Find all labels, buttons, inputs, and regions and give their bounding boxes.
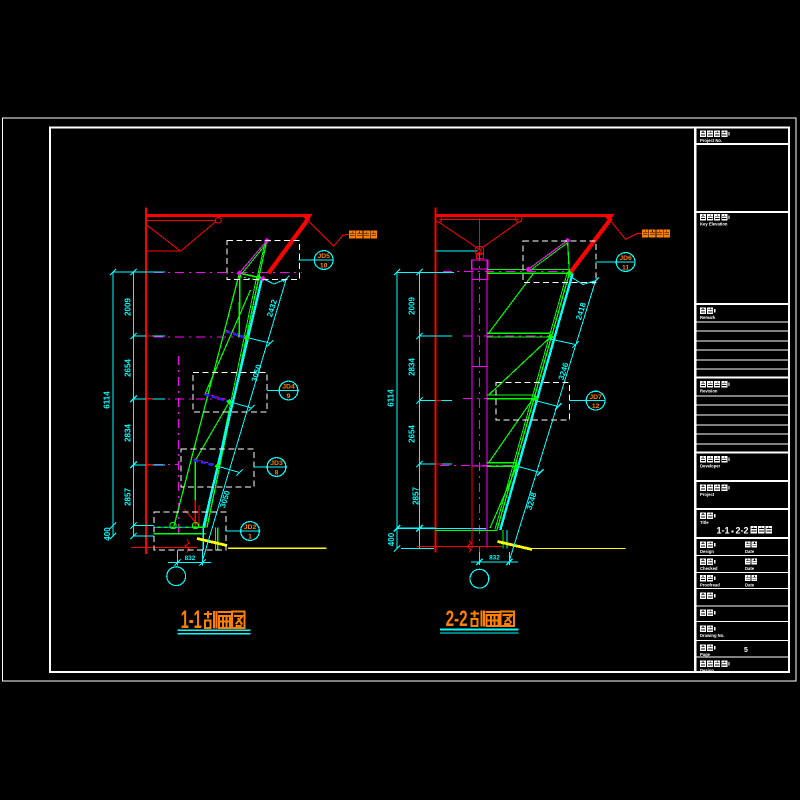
svg-text:JD6: JD6 bbox=[619, 255, 632, 262]
svg-text:6114: 6114 bbox=[103, 391, 112, 409]
svg-text:1: 1 bbox=[248, 533, 252, 540]
svg-text:400: 400 bbox=[103, 527, 112, 541]
svg-text:2009: 2009 bbox=[124, 298, 133, 316]
svg-text:8: 8 bbox=[275, 469, 279, 476]
svg-text:Design: Design bbox=[700, 668, 714, 673]
svg-text:Revision: Revision bbox=[700, 389, 718, 394]
svg-text:JD2: JD2 bbox=[244, 524, 257, 531]
svg-text:832: 832 bbox=[489, 555, 500, 562]
svg-text:Drawing No.: Drawing No. bbox=[700, 633, 724, 638]
svg-text:Developer: Developer bbox=[700, 464, 721, 469]
svg-text:2009: 2009 bbox=[408, 297, 417, 315]
svg-text:JD3: JD3 bbox=[270, 460, 283, 467]
svg-text:9: 9 bbox=[287, 393, 291, 400]
svg-text:Date: Date bbox=[745, 583, 755, 588]
svg-text:12: 12 bbox=[592, 403, 600, 410]
svg-text:2834: 2834 bbox=[408, 358, 417, 376]
svg-text:Remark: Remark bbox=[700, 315, 716, 320]
svg-text:832: 832 bbox=[185, 555, 196, 562]
svg-text:Page: Page bbox=[700, 652, 711, 657]
svg-text:2-2: 2-2 bbox=[446, 606, 468, 631]
svg-text:JD7: JD7 bbox=[589, 394, 602, 401]
svg-text:2654: 2654 bbox=[124, 359, 133, 377]
svg-text:Key Elevation: Key Elevation bbox=[700, 222, 728, 227]
svg-text:Project No.: Project No. bbox=[700, 138, 722, 143]
svg-text:5: 5 bbox=[744, 647, 748, 654]
svg-text:JD5: JD5 bbox=[317, 253, 330, 260]
svg-text:2654: 2654 bbox=[408, 425, 417, 443]
svg-text:Date: Date bbox=[745, 566, 755, 571]
svg-text:1-1: 1-1 bbox=[717, 526, 730, 536]
svg-text:Design: Design bbox=[700, 549, 714, 554]
svg-text:6114: 6114 bbox=[387, 389, 396, 407]
svg-text:2857: 2857 bbox=[412, 487, 421, 505]
svg-text:Checked: Checked bbox=[700, 566, 718, 571]
svg-text:Date: Date bbox=[745, 549, 755, 554]
svg-text:Proofread: Proofread bbox=[700, 583, 720, 588]
svg-text:400: 400 bbox=[387, 532, 396, 546]
svg-text:11: 11 bbox=[622, 264, 629, 271]
svg-text:2-2: 2-2 bbox=[736, 526, 749, 536]
svg-text:2834: 2834 bbox=[124, 424, 133, 442]
svg-text:2857: 2857 bbox=[124, 488, 133, 506]
svg-text:JD4: JD4 bbox=[282, 384, 295, 391]
svg-text:10: 10 bbox=[320, 262, 328, 269]
svg-text:Title: Title bbox=[700, 520, 709, 525]
svg-text:Project: Project bbox=[700, 492, 715, 497]
